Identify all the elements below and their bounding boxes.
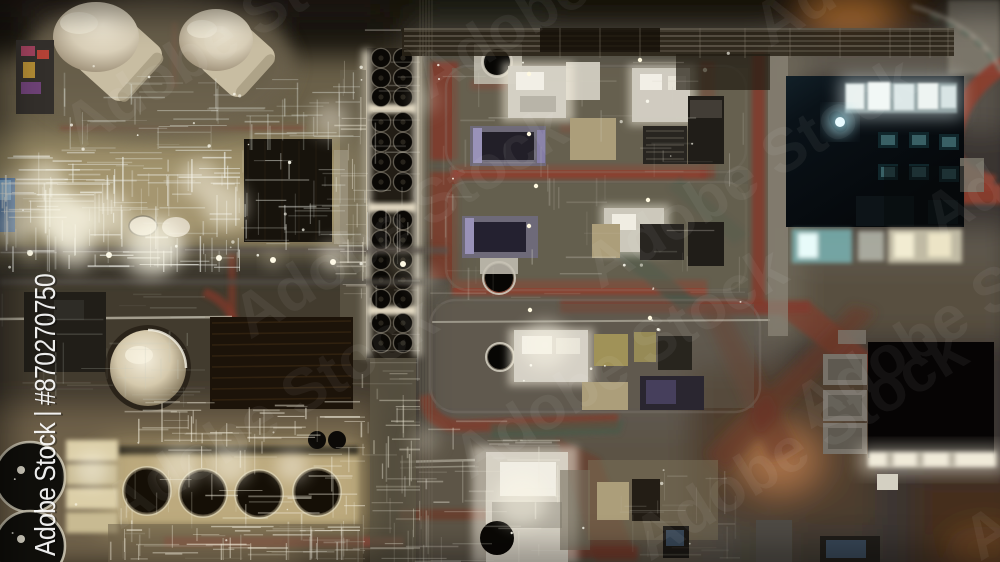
svg-text:Adobe Stock | #870270750: Adobe Stock | #870270750 bbox=[29, 274, 61, 556]
